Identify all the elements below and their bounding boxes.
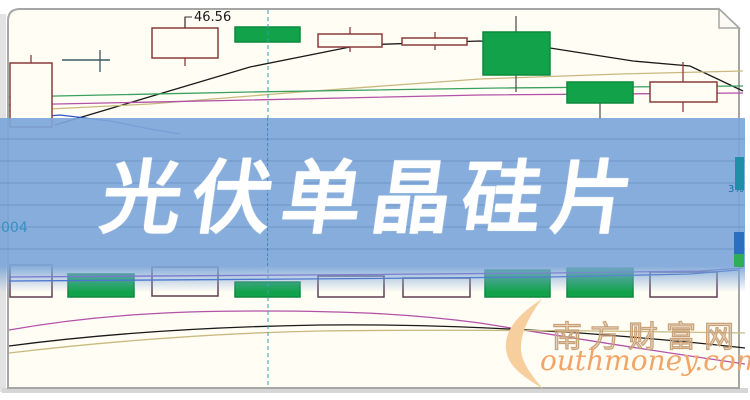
hollow-candle <box>152 28 218 58</box>
title-banner-fade <box>0 266 745 292</box>
green-candle <box>567 82 633 103</box>
hollow-candle <box>650 82 717 102</box>
page-image: 46.56 光伏单晶硅片 004 3% 南方财富网 outhmoney.com <box>0 0 750 400</box>
price-annotation-label: 46.56 <box>194 10 231 25</box>
page-fold-corner <box>719 9 739 28</box>
hollow-candle <box>402 38 467 45</box>
code-label: 004 <box>1 220 28 236</box>
banner-title: 光伏单晶硅片 <box>94 134 650 250</box>
green-candle <box>483 32 550 75</box>
edge-mini-bar-blue <box>734 232 744 254</box>
hollow-candle <box>318 34 382 47</box>
banner-title-wrap: 光伏单晶硅片 <box>0 118 745 266</box>
watermark-text-en: outhmoney.com <box>540 344 750 377</box>
watermark: 南方财富网 outhmoney.com <box>495 295 750 395</box>
edge-mini-bar-green <box>734 254 744 267</box>
edge-mini-bar-teal <box>735 157 744 190</box>
